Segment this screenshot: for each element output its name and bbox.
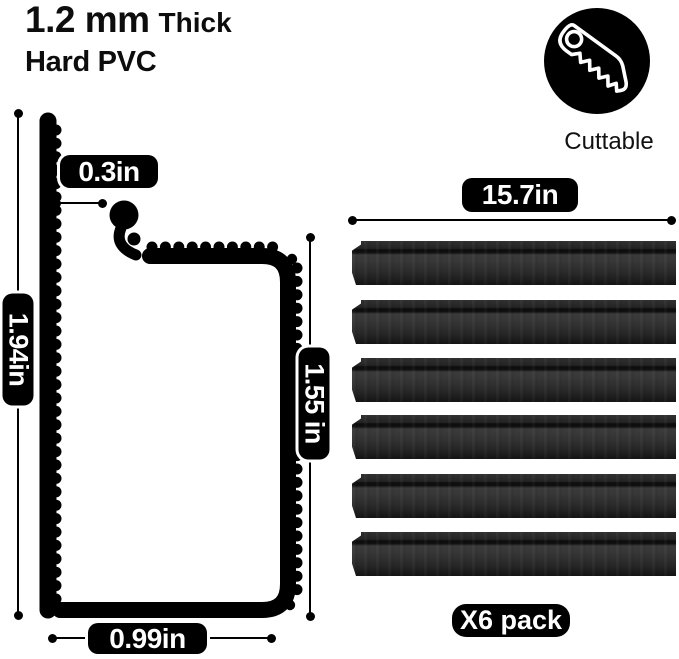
pvc-strip <box>352 300 676 344</box>
pvc-strip <box>352 241 676 285</box>
pack-count-badge: X6 pack <box>452 604 570 637</box>
cuttable-label: Cuttable <box>550 128 668 156</box>
dim-line-top-opening <box>55 202 104 204</box>
dim-line-strip-length <box>351 219 673 221</box>
dim-label-strip-length: 15.7in <box>462 178 578 212</box>
pvc-strip <box>352 532 676 576</box>
dim-label-bottom-width: 0.99in <box>88 623 207 654</box>
dim-label-inner-height: 1.55 in <box>299 348 330 460</box>
saw-icon <box>544 8 650 114</box>
pvc-strip <box>352 358 676 402</box>
dim-label-top-opening: 0.3in <box>60 155 158 188</box>
profile-cross-section <box>0 95 340 659</box>
pvc-strip <box>352 415 676 459</box>
strips-stack <box>352 241 676 576</box>
dim-label-total-height: 1.94in <box>3 294 34 406</box>
thickness-label: Thick <box>159 0 232 46</box>
headline: 1.2 mm Thick Hard PVC <box>25 0 232 78</box>
pvc-strip <box>352 474 676 518</box>
thickness-value: 1.2 mm <box>25 0 150 43</box>
product-infographic: 1.2 mm Thick Hard PVC Cuttable <box>0 0 679 659</box>
material-label: Hard PVC <box>25 46 232 78</box>
